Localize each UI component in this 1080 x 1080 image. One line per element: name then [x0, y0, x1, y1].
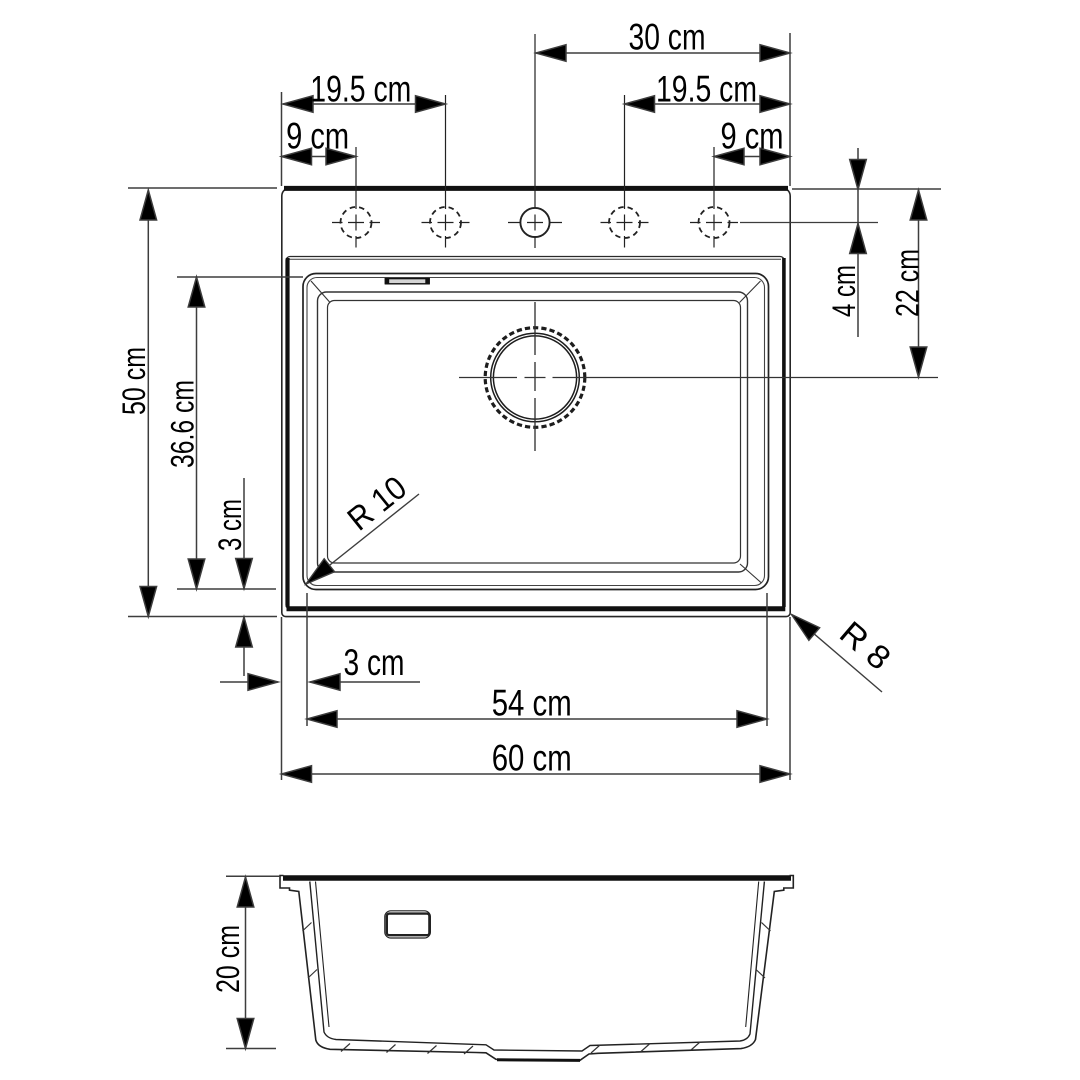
svg-text:9 cm: 9 cm [286, 116, 349, 157]
svg-text:3 cm: 3 cm [344, 642, 405, 683]
svg-text:20 cm: 20 cm [210, 925, 246, 993]
svg-text:36.6 cm: 36.6 cm [165, 380, 201, 468]
svg-text:19.5 cm: 19.5 cm [310, 69, 411, 110]
svg-text:19.5 cm: 19.5 cm [656, 69, 757, 110]
svg-text:60 cm: 60 cm [492, 738, 572, 779]
svg-text:54 cm: 54 cm [492, 683, 572, 724]
svg-text:3 cm: 3 cm [212, 499, 248, 551]
svg-text:22 cm: 22 cm [890, 249, 926, 317]
svg-text:4 cm: 4 cm [826, 265, 862, 317]
svg-text:9 cm: 9 cm [721, 116, 784, 157]
svg-text:50 cm: 50 cm [116, 347, 152, 415]
svg-text:30 cm: 30 cm [629, 17, 706, 58]
